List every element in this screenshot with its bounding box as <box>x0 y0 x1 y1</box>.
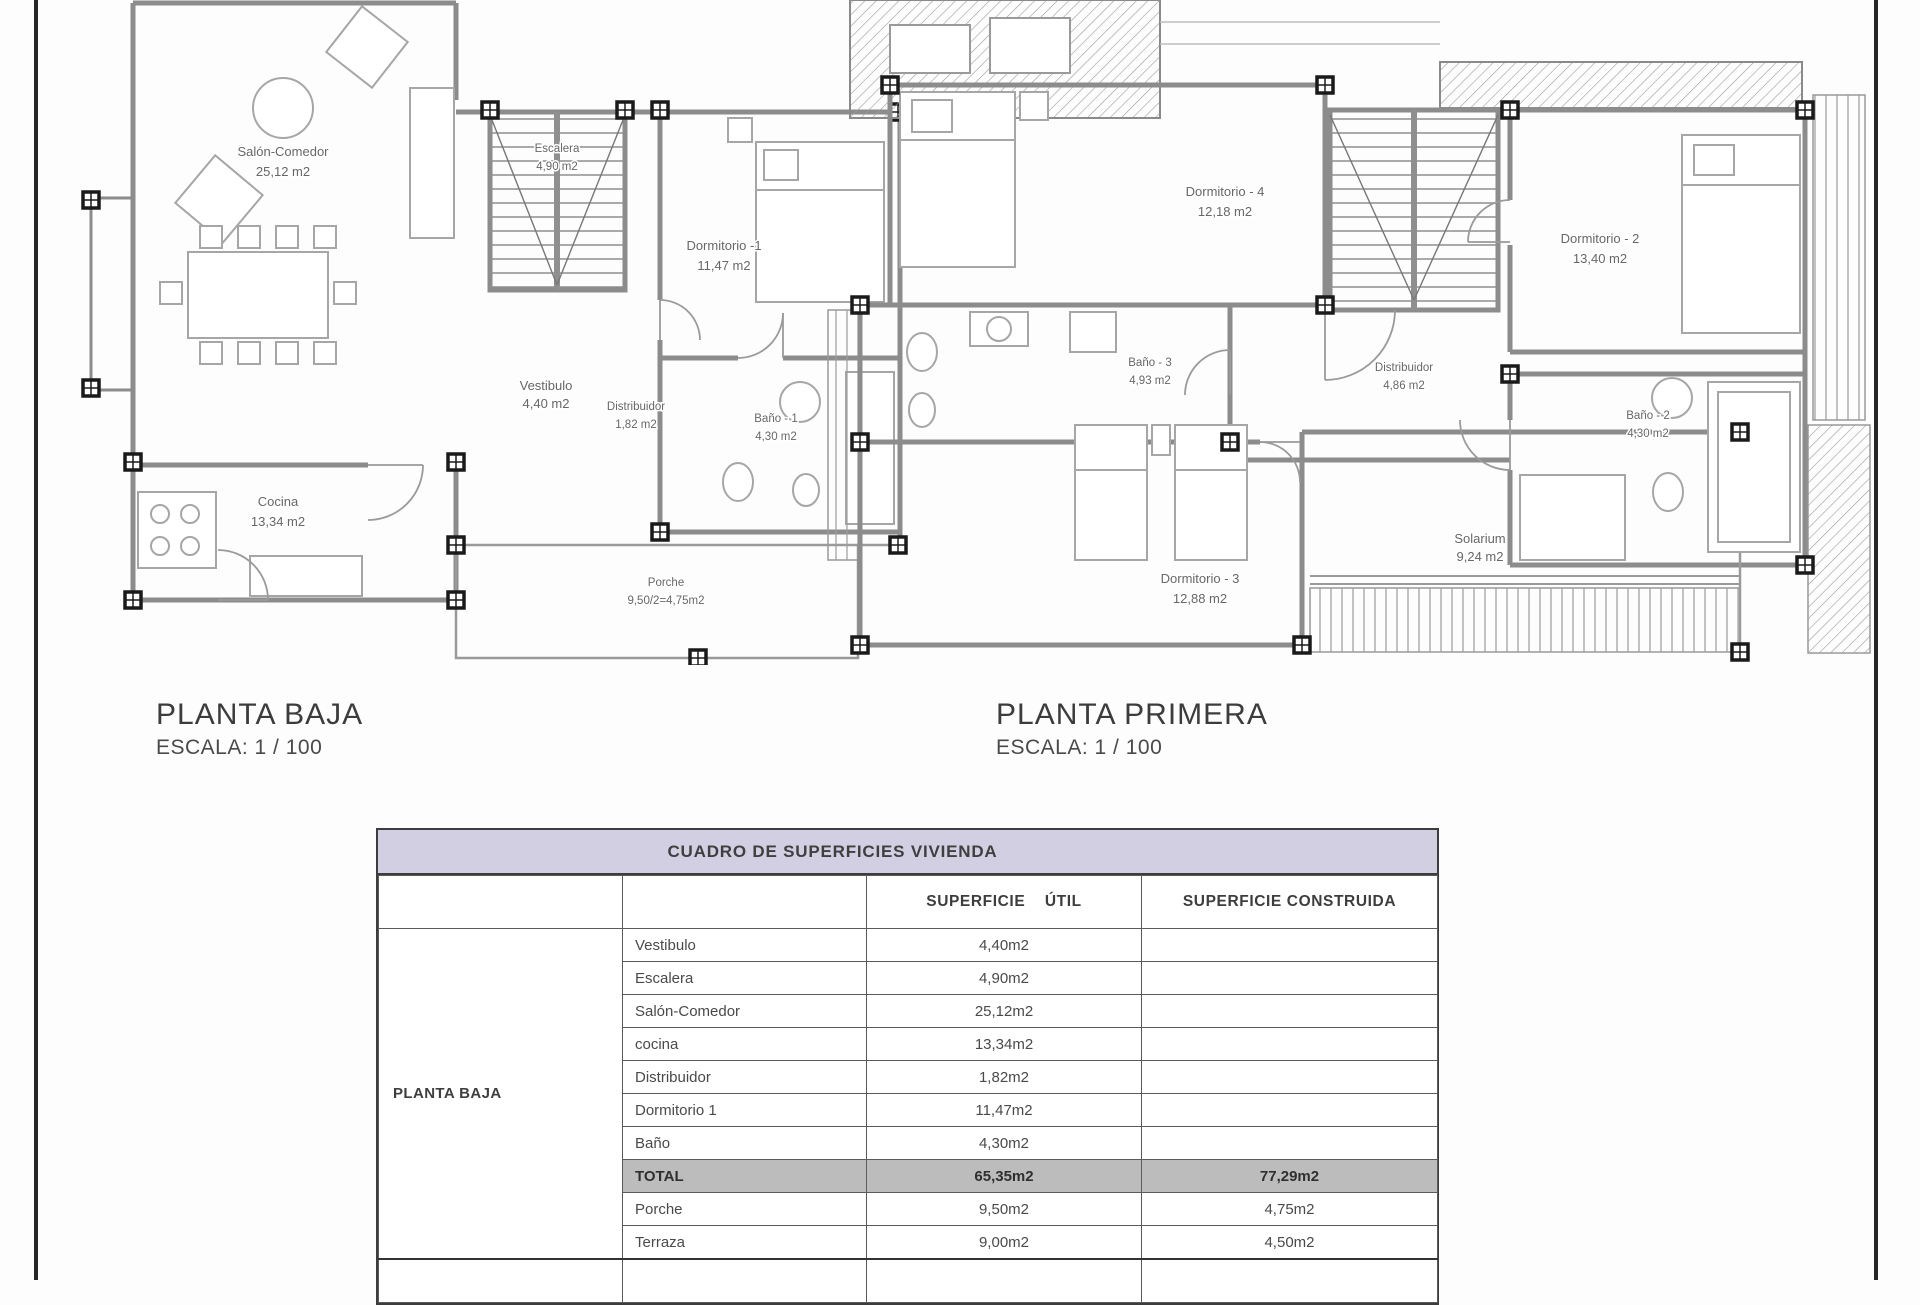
table-next-section-row <box>379 1259 1438 1303</box>
cell-room: Escalera <box>623 962 867 995</box>
bathroom3-fixtures <box>907 312 1116 427</box>
cell-room: Baño <box>623 1127 867 1160</box>
plan1-scale: ESCALA: 1 / 100 <box>156 736 322 760</box>
floorplan-planta-baja: Salón-Comedor 25,12 m2 Escalera 4,90 m2 … <box>38 0 918 665</box>
kitchen-fixtures <box>138 492 362 596</box>
bathtub <box>1520 475 1625 560</box>
room-label: Solarium <box>1454 531 1505 546</box>
header-empty-cell <box>623 876 867 929</box>
cell-room: Porche <box>623 1193 867 1226</box>
bedroom2-furniture <box>1682 135 1800 333</box>
room-area: 1,82 m2 <box>615 419 657 431</box>
toilet <box>1653 473 1683 511</box>
room-label: Distribuidor <box>607 401 665 413</box>
room-label: Porche <box>648 577 684 589</box>
cell-construida <box>1142 1094 1438 1127</box>
nightstand <box>1020 92 1048 120</box>
round-table <box>253 78 313 138</box>
sofa <box>410 88 454 238</box>
room-area: 4,40 m2 <box>523 396 570 411</box>
cell-construida <box>1142 1061 1438 1094</box>
bedroom4-furniture <box>900 92 1048 267</box>
side-balcony-hatch <box>1813 95 1865 420</box>
terrace-strip <box>91 198 133 390</box>
cell-util: 25,12m2 <box>867 995 1142 1028</box>
header-empty-cell <box>379 876 623 929</box>
bidet <box>909 393 935 427</box>
room-area: 13,34 m2 <box>251 514 305 529</box>
staircase <box>490 112 625 290</box>
cell-room: Distribuidor <box>623 1061 867 1094</box>
table-row: PLANTA BAJA Vestibulo 4,40m2 <box>379 929 1438 962</box>
floorplan-planta-primera: Dormitorio - 4 12,18 m2 Dormitorio - 2 1… <box>820 0 1880 665</box>
cell-util: 9,50m2 <box>867 1193 1142 1226</box>
pillow <box>764 150 798 180</box>
room-label: Baño - 2 <box>1626 410 1669 422</box>
room-label: Baño - 1 <box>754 413 797 425</box>
room-label: Distribuidor <box>1375 362 1433 374</box>
room-area: 13,40 m2 <box>1573 251 1627 266</box>
toilet <box>723 463 753 501</box>
col-header-superficie-construida: SUPERFICIE CONSTRUIDA <box>1142 876 1438 929</box>
room-area: 12,88 m2 <box>1173 591 1227 606</box>
room-label: Dormitorio - 3 <box>1161 571 1240 586</box>
cell-construida <box>1142 1127 1438 1160</box>
room-area: 12,18 m2 <box>1198 204 1252 219</box>
living-room-furniture <box>160 6 454 364</box>
cell-construida: 4,75m2 <box>1142 1193 1438 1226</box>
cell-construida <box>1142 929 1438 962</box>
room-label: Dormitorio -1 <box>686 238 761 253</box>
room-label: Baño - 3 <box>1128 357 1171 369</box>
room-area: 4,30 m2 <box>1627 428 1669 440</box>
cell-room: Vestibulo <box>623 929 867 962</box>
cell-util: 13,34m2 <box>867 1028 1142 1061</box>
room-area: 9,50/2=4,75m2 <box>627 595 704 607</box>
cell-util: 11,47m2 <box>867 1094 1142 1127</box>
cell-room: Salón-Comedor <box>623 995 867 1028</box>
exterior-stair-hatch <box>1808 425 1870 653</box>
stove <box>138 492 216 568</box>
room-label: Cocina <box>258 494 299 509</box>
armchair <box>326 6 407 87</box>
cell-room: TOTAL <box>623 1160 867 1193</box>
cell-room: Terraza <box>623 1226 867 1260</box>
group-label-next <box>379 1259 623 1303</box>
table-title: CUADRO DE SUPERFICIES VIVIENDA <box>378 830 1437 875</box>
table-header-row: SUPERFICIE ÚTIL SUPERFICIE CONSTRUIDA <box>379 876 1438 929</box>
cell-room: Dormitorio 1 <box>623 1094 867 1127</box>
cell-construida <box>1142 1028 1438 1061</box>
room-area: 11,47 m2 <box>697 258 750 273</box>
room-area: 4,93 m2 <box>1129 375 1171 387</box>
room-label: Escalera <box>535 143 580 155</box>
plan2-scale: ESCALA: 1 / 100 <box>996 736 1162 760</box>
room-label: Vestibulo <box>520 378 573 393</box>
group-label: PLANTA BAJA <box>379 929 623 1260</box>
cell-util: 65,35m2 <box>867 1160 1142 1193</box>
cell-room: cocina <box>623 1028 867 1061</box>
cell-util: 1,82m2 <box>867 1061 1142 1094</box>
cell-util: 4,40m2 <box>867 929 1142 962</box>
pillow <box>912 100 952 132</box>
cell-construida <box>1142 995 1438 1028</box>
room-area: 25,12 m2 <box>256 164 310 179</box>
nightstand <box>728 118 752 142</box>
plan1-title: PLANTA BAJA <box>156 698 363 732</box>
room-label: Dormitorio - 2 <box>1561 231 1640 246</box>
plan2-title: PLANTA PRIMERA <box>996 698 1268 732</box>
dining-table <box>188 252 328 338</box>
room-label: Salón-Comedor <box>237 144 329 159</box>
cell-construida: 77,29m2 <box>1142 1160 1438 1193</box>
cell-util: 4,30m2 <box>867 1127 1142 1160</box>
room-label: Dormitorio - 4 <box>1186 184 1265 199</box>
cell-construida <box>1142 962 1438 995</box>
washing-machine <box>1070 312 1116 352</box>
surface-table: CUADRO DE SUPERFICIES VIVIENDA SUPERFICI… <box>376 828 1439 1305</box>
cell-util: 4,90m2 <box>867 962 1142 995</box>
room-area: 4,30 m2 <box>755 431 797 443</box>
bidet <box>793 474 819 506</box>
cell-util: 9,00m2 <box>867 1226 1142 1260</box>
cell-construida: 4,50m2 <box>1142 1226 1438 1260</box>
toilet <box>907 333 937 371</box>
staircase <box>1330 110 1498 310</box>
room-area: 4,90 m2 <box>536 161 578 173</box>
bathroom2-fixtures <box>1520 378 1800 560</box>
room-area: 4,86 m2 <box>1383 380 1425 392</box>
col-header-superficie-util: SUPERFICIE ÚTIL <box>867 876 1142 929</box>
bed <box>1075 425 1147 560</box>
nightstand <box>1152 425 1170 455</box>
pillow <box>1694 145 1734 175</box>
room-area: 9,24 m2 <box>1457 549 1504 564</box>
surface-table-grid: SUPERFICIE ÚTIL SUPERFICIE CONSTRUIDA PL… <box>378 875 1438 1303</box>
